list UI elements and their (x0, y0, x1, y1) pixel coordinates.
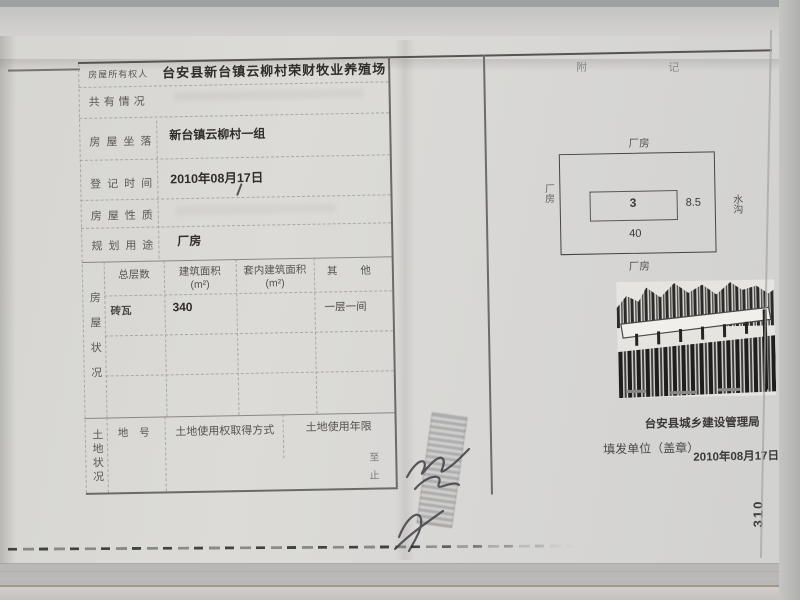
field-value-planned-use: 厂房 (177, 232, 201, 249)
left-edge-shadow (0, 36, 16, 564)
grid-hline (105, 330, 393, 336)
house-header-inner-area: 套内建筑面积 (238, 264, 312, 278)
row-divider (79, 112, 389, 119)
notes-title-left-char: 附 (576, 59, 587, 75)
house-header-floors: 总层数 (118, 269, 150, 282)
table-bottom-border (86, 487, 398, 495)
house-condition-side-label: 房屋状况 (86, 272, 105, 412)
property-photo-image (616, 279, 776, 398)
photo-background-right (779, 0, 800, 600)
issue-date: 2010年08月17日 (693, 447, 779, 465)
land-term-from-mark: 至 (369, 449, 379, 464)
grid-vline (282, 414, 284, 458)
grid-hline (104, 290, 392, 296)
field-label-co-ownership: 共有情况 (89, 93, 149, 110)
row-divider (81, 222, 391, 229)
page-edge-line (0, 578, 800, 580)
page-top-curl (0, 7, 800, 35)
field-label-registration-date: 登记时间 (90, 175, 158, 192)
row-divider (78, 81, 388, 88)
site-plan-height-dim: 8.5 (686, 197, 702, 209)
house-header-other: 其 他 (327, 264, 381, 277)
photographed-ledger-page: { "form": { "rows": [ {"label": "房屋所有权人"… (0, 0, 800, 600)
page-edge-line (0, 563, 800, 564)
house-cell-area: 340 (172, 300, 192, 314)
page-number: 310 (750, 500, 765, 528)
page-edge-line (0, 571, 800, 572)
handwritten-signature (385, 425, 495, 555)
grid-vline (165, 416, 167, 491)
site-plan-label-left: 厂房 (540, 183, 555, 203)
field-label-planned-use: 规划用途 (91, 237, 159, 254)
land-condition-side-label: 土地状况 (89, 426, 106, 488)
section-divider (85, 412, 395, 419)
house-cell-other: 一层一间 (324, 299, 366, 315)
field-value-registration-date: 2010年08月17日 (170, 167, 263, 188)
site-plan-building-number: 3 (630, 196, 637, 210)
land-header-right-acquisition: 土地使用权取得方式 (169, 424, 281, 440)
house-header-floor-area-unit: (m²) (166, 278, 234, 292)
issuing-authority: 台安县城乡建设管理局 (645, 414, 760, 432)
house-header-floor-area: 建筑面积 (166, 265, 234, 279)
field-value-owner: 台安县新台镇云柳村荣财牧业养殖场 (162, 58, 386, 81)
issuing-unit-label: 填发单位（盖章） (603, 439, 699, 458)
page-edge-bottom (0, 587, 800, 600)
photo-background-top (0, 0, 800, 7)
faded-smudge (176, 203, 336, 215)
field-label-location: 房屋坐落 (89, 133, 157, 150)
land-header-use-term: 土地使用年限 (289, 420, 389, 436)
site-plan-label-top: 厂房 (628, 136, 649, 151)
house-cell-structure: 砖瓦 (110, 303, 131, 318)
site-plan-label-bottom: 厂房 (629, 259, 650, 274)
land-header-parcel-number: 地 号 (109, 427, 163, 441)
field-value-location: 新台镇云柳村一组 (169, 125, 265, 144)
site-plan-label-right: 水沟 (729, 194, 744, 214)
grid-vline (104, 262, 108, 418)
notes-title-right-char: 记 (668, 59, 679, 75)
field-label-house-nature: 房屋性质 (91, 207, 159, 224)
row-divider (80, 154, 390, 161)
property-photo (616, 279, 776, 398)
land-term-to-mark: 止 (369, 467, 379, 482)
grid-hline (106, 370, 394, 376)
faded-smudge (174, 89, 364, 101)
field-label-owner: 房屋所有权人 (88, 67, 148, 81)
grid-vline (314, 258, 318, 414)
house-header-inner-area-unit: (m²) (238, 277, 312, 291)
site-plan-width-dim: 40 (629, 228, 641, 240)
